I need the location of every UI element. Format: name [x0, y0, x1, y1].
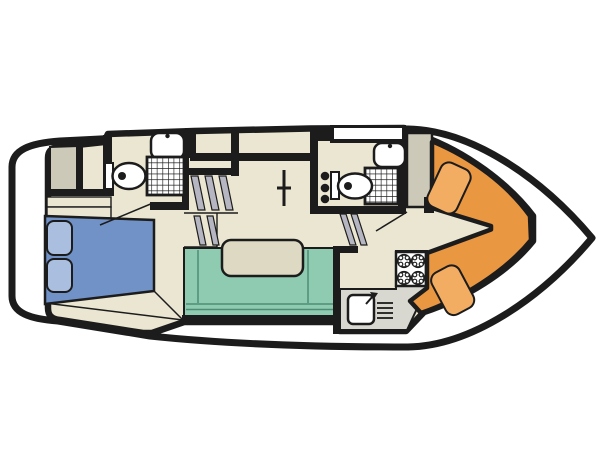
wall-hook: [321, 172, 330, 181]
wall-side-deck: [190, 153, 312, 161]
wall-aft-cabin: [48, 189, 114, 196]
saloon-table: [222, 240, 303, 276]
roof-hatch: [334, 128, 402, 139]
stove-burner-icon: [398, 255, 410, 267]
boat-floor-plan: [0, 0, 605, 454]
wall-fwd-bathroom-bottom: [310, 206, 405, 214]
toilet: [338, 174, 372, 199]
wall-wardrobe: [76, 146, 83, 193]
wall-galley-top: [333, 246, 358, 253]
wall-galley-left: [333, 247, 340, 334]
wall-hook: [321, 195, 330, 204]
toilet-drain-icon: [118, 172, 126, 180]
wall-corner-post: [185, 128, 196, 158]
aft-shelf: [47, 197, 111, 207]
shower: [147, 157, 184, 195]
pillow: [47, 259, 72, 292]
stove-burner-icon: [398, 272, 410, 284]
pillow: [47, 221, 72, 255]
aft-wardrobe: [50, 146, 78, 192]
wall-saloon-bottom: [182, 315, 340, 323]
floor-plan-canvas: [0, 0, 605, 454]
toilet: [113, 163, 146, 189]
stove-burner-icon: [412, 255, 424, 267]
faucet-icon: [388, 144, 392, 148]
toilet-drain-icon: [344, 182, 352, 190]
stove-burner-icon: [412, 272, 424, 284]
wall-hook: [321, 184, 330, 193]
wall-aft-bathroom-bottom: [150, 202, 188, 210]
faucet-icon: [165, 134, 169, 138]
